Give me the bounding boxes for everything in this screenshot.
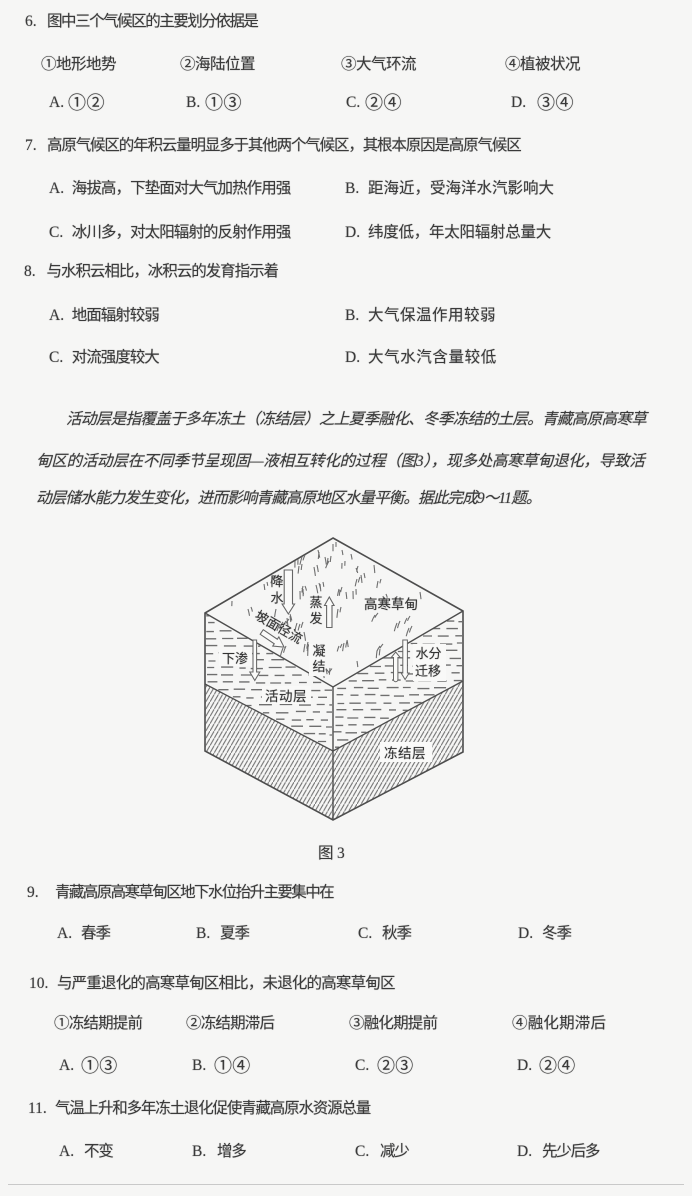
svg-text:降: 降 [270, 574, 283, 589]
svg-text:冻结层: 冻结层 [384, 746, 426, 761]
svg-text:高寒草甸: 高寒草甸 [364, 596, 418, 612]
svg-text:下渗: 下渗 [222, 651, 248, 666]
svg-text:活动层: 活动层 [265, 689, 307, 704]
svg-text:水分: 水分 [416, 646, 442, 661]
svg-text:水: 水 [270, 591, 283, 606]
svg-text:发: 发 [309, 611, 322, 626]
svg-text:结: 结 [312, 659, 325, 674]
svg-text:迁移: 迁移 [415, 664, 441, 679]
svg-text:蒸: 蒸 [309, 595, 322, 610]
svg-text:凝: 凝 [312, 644, 325, 659]
